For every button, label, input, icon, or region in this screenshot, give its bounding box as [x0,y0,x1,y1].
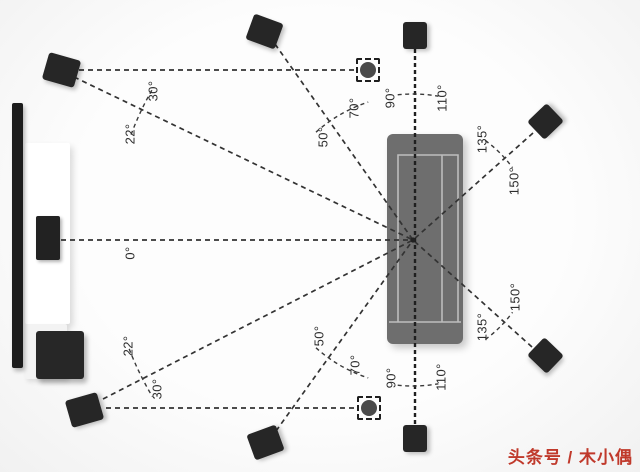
label-30-upper: 30° [146,81,161,102]
speaker-placement-diagram: 头条号 / 木小偶 0°22°30°50°70°90°110°135°150°2… [0,0,640,472]
label-70-upper: 70° [347,98,362,119]
overhead-speaker-dot [360,62,376,78]
label-110-lower: 110° [434,363,449,391]
overhead-speaker-dot [361,400,377,416]
label-30-lower: 30° [150,379,165,400]
label-135-lower: 135° [475,313,490,342]
listening-point [410,237,415,242]
angle-arc-2 [398,94,439,96]
sight-line-5 [276,240,413,431]
label-50-upper: 50° [316,127,331,148]
label-90-lower: 90° [384,368,399,389]
label-135-upper: 135° [475,125,490,154]
angle-arc-6 [398,384,439,386]
overhead-speaker-upper [356,58,380,82]
speaker-top-upper [403,22,427,49]
sofa-seat-line-0 [398,155,458,322]
watermark-text: 头条号 / 木小偶 [508,443,633,468]
label-150-lower: 150° [508,283,523,312]
label-0: 0° [123,246,138,259]
label-22-upper: 22° [123,124,138,145]
sight-line-0 [74,77,413,240]
sight-line-4 [103,240,413,399]
label-90-upper: 90° [383,88,398,109]
speaker-top-lower [403,425,427,452]
overhead-speaker-lower [357,396,381,420]
label-70-lower: 70° [348,355,363,376]
label-50-lower: 50° [312,326,327,347]
label-150-upper: 150° [507,167,522,196]
sight-line-1 [275,44,413,240]
label-22-lower: 22° [121,336,136,357]
label-110-upper: 110° [435,84,450,112]
